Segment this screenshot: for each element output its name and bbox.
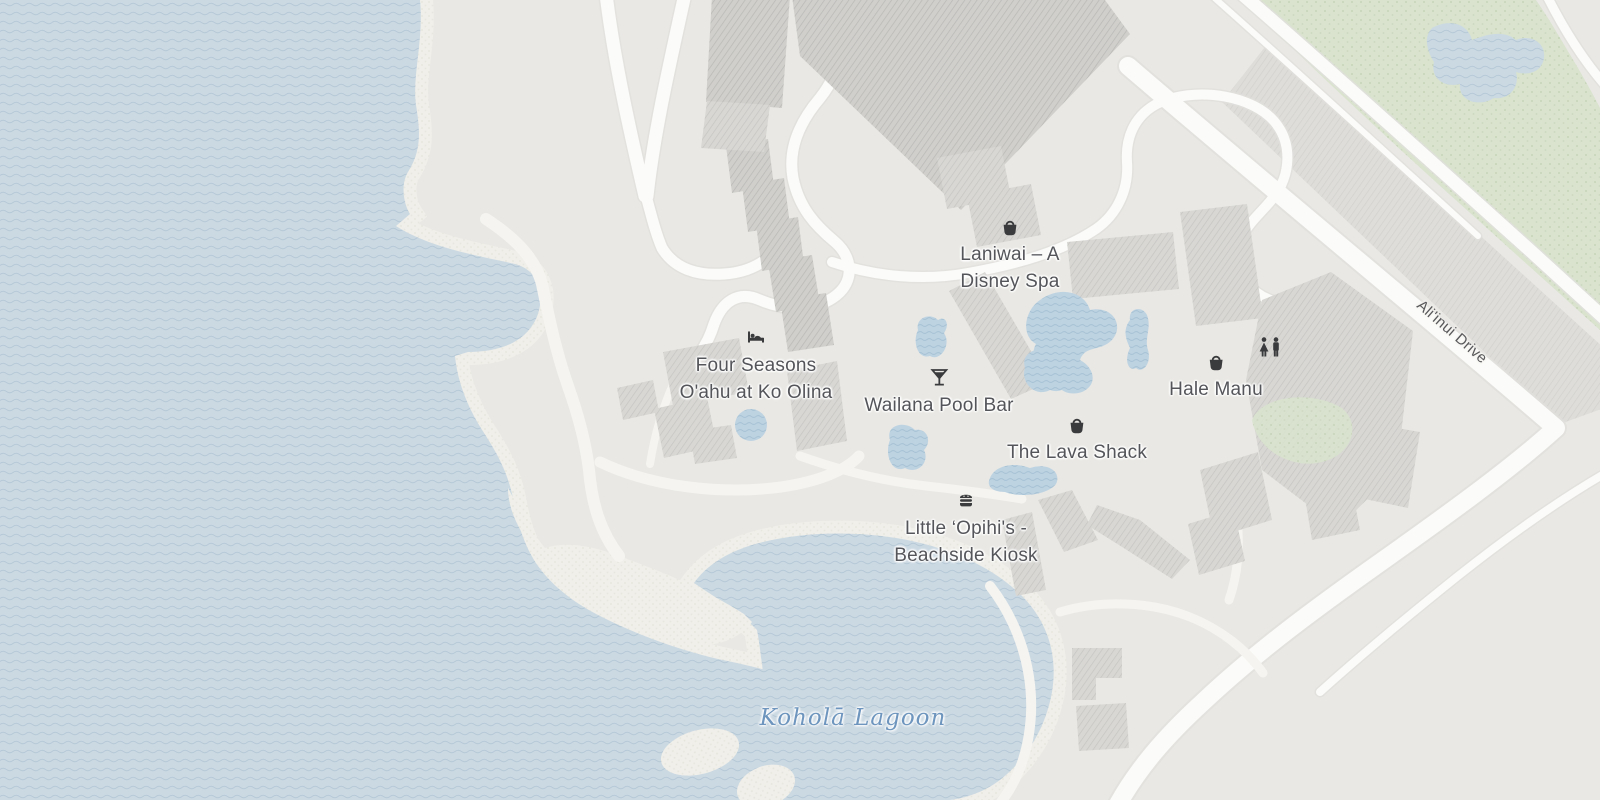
poi-little-opihis-kiosk[interactable]: Little ‘Opihi's - Beachside Kiosk xyxy=(884,488,1048,569)
poi-four-seasons[interactable]: Four Seasons O'ahu at Ko Olina xyxy=(671,325,841,406)
food-kiosk-icon xyxy=(954,488,978,512)
poi-label: Laniwai – A Disney Spa xyxy=(935,241,1085,295)
poi-lava-shack[interactable]: The Lava Shack xyxy=(1007,414,1147,466)
shopping-bag-icon xyxy=(1066,414,1088,436)
restroom-icon xyxy=(1255,336,1285,360)
lagoon-name-label: Koholā Lagoon xyxy=(760,705,947,731)
shopping-bag-icon xyxy=(999,216,1021,238)
hotel-bed-icon xyxy=(744,325,768,349)
poi-label: Hale Manu xyxy=(1169,376,1263,403)
poi-label: Wailana Pool Bar xyxy=(864,392,1013,419)
poi-label: Four Seasons O'ahu at Ko Olina xyxy=(671,352,841,406)
map-canvas[interactable]: Four Seasons O'ahu at Ko Olina Laniwai –… xyxy=(0,0,1600,800)
poi-label: The Lava Shack xyxy=(1007,439,1147,466)
shopping-bag-icon xyxy=(1205,351,1227,373)
poi-hale-manu[interactable]: Hale Manu xyxy=(1169,351,1263,403)
poi-wailana-pool-bar[interactable]: Wailana Pool Bar xyxy=(864,365,1013,419)
cocktail-icon xyxy=(927,365,951,389)
poi-restrooms[interactable] xyxy=(1255,336,1285,360)
poi-label: Little ‘Opihi's - Beachside Kiosk xyxy=(884,515,1048,569)
poi-laniwai-spa[interactable]: Laniwai – A Disney Spa xyxy=(935,216,1085,295)
